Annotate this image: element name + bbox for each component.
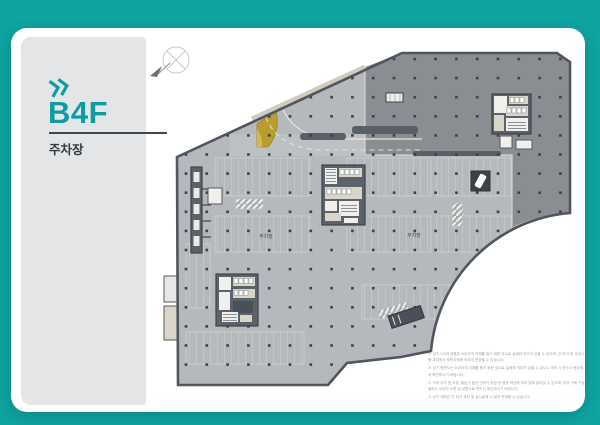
north-arrow-icon [150,47,189,77]
core-bottom-left [216,274,258,326]
car-lift [471,171,490,191]
note-line: ※ 상기 CG와 내용은 소비자의 이해를 돕기 위한 것으로 실제와 차이가 … [428,351,585,364]
area-label-parking-2: 주차장 [407,232,421,239]
vent-room [386,93,403,102]
note-line: ※ 지하 주차 및 조경, 출입구 등은 인허가 과정 및 현장 여건에 따라 … [428,380,585,393]
page: B4F 주차장 [0,0,600,425]
core-middle [322,165,365,225]
note-line: ※ 상기 평면도는 소비자의 이해를 돕기 위한 것으로 실제와 차이가 있을 … [428,365,585,378]
note-line: ※ 상기 계획은 인·허가 과정 및 실시설계 시 일부 변경될 수 있습니다. [428,394,585,400]
area-label-parking-1: 주차장 [259,233,273,240]
disclaimer-notes: ※ 상기 CG와 내용은 소비자의 이해를 돕기 위한 것으로 실제와 차이가 … [428,351,585,402]
